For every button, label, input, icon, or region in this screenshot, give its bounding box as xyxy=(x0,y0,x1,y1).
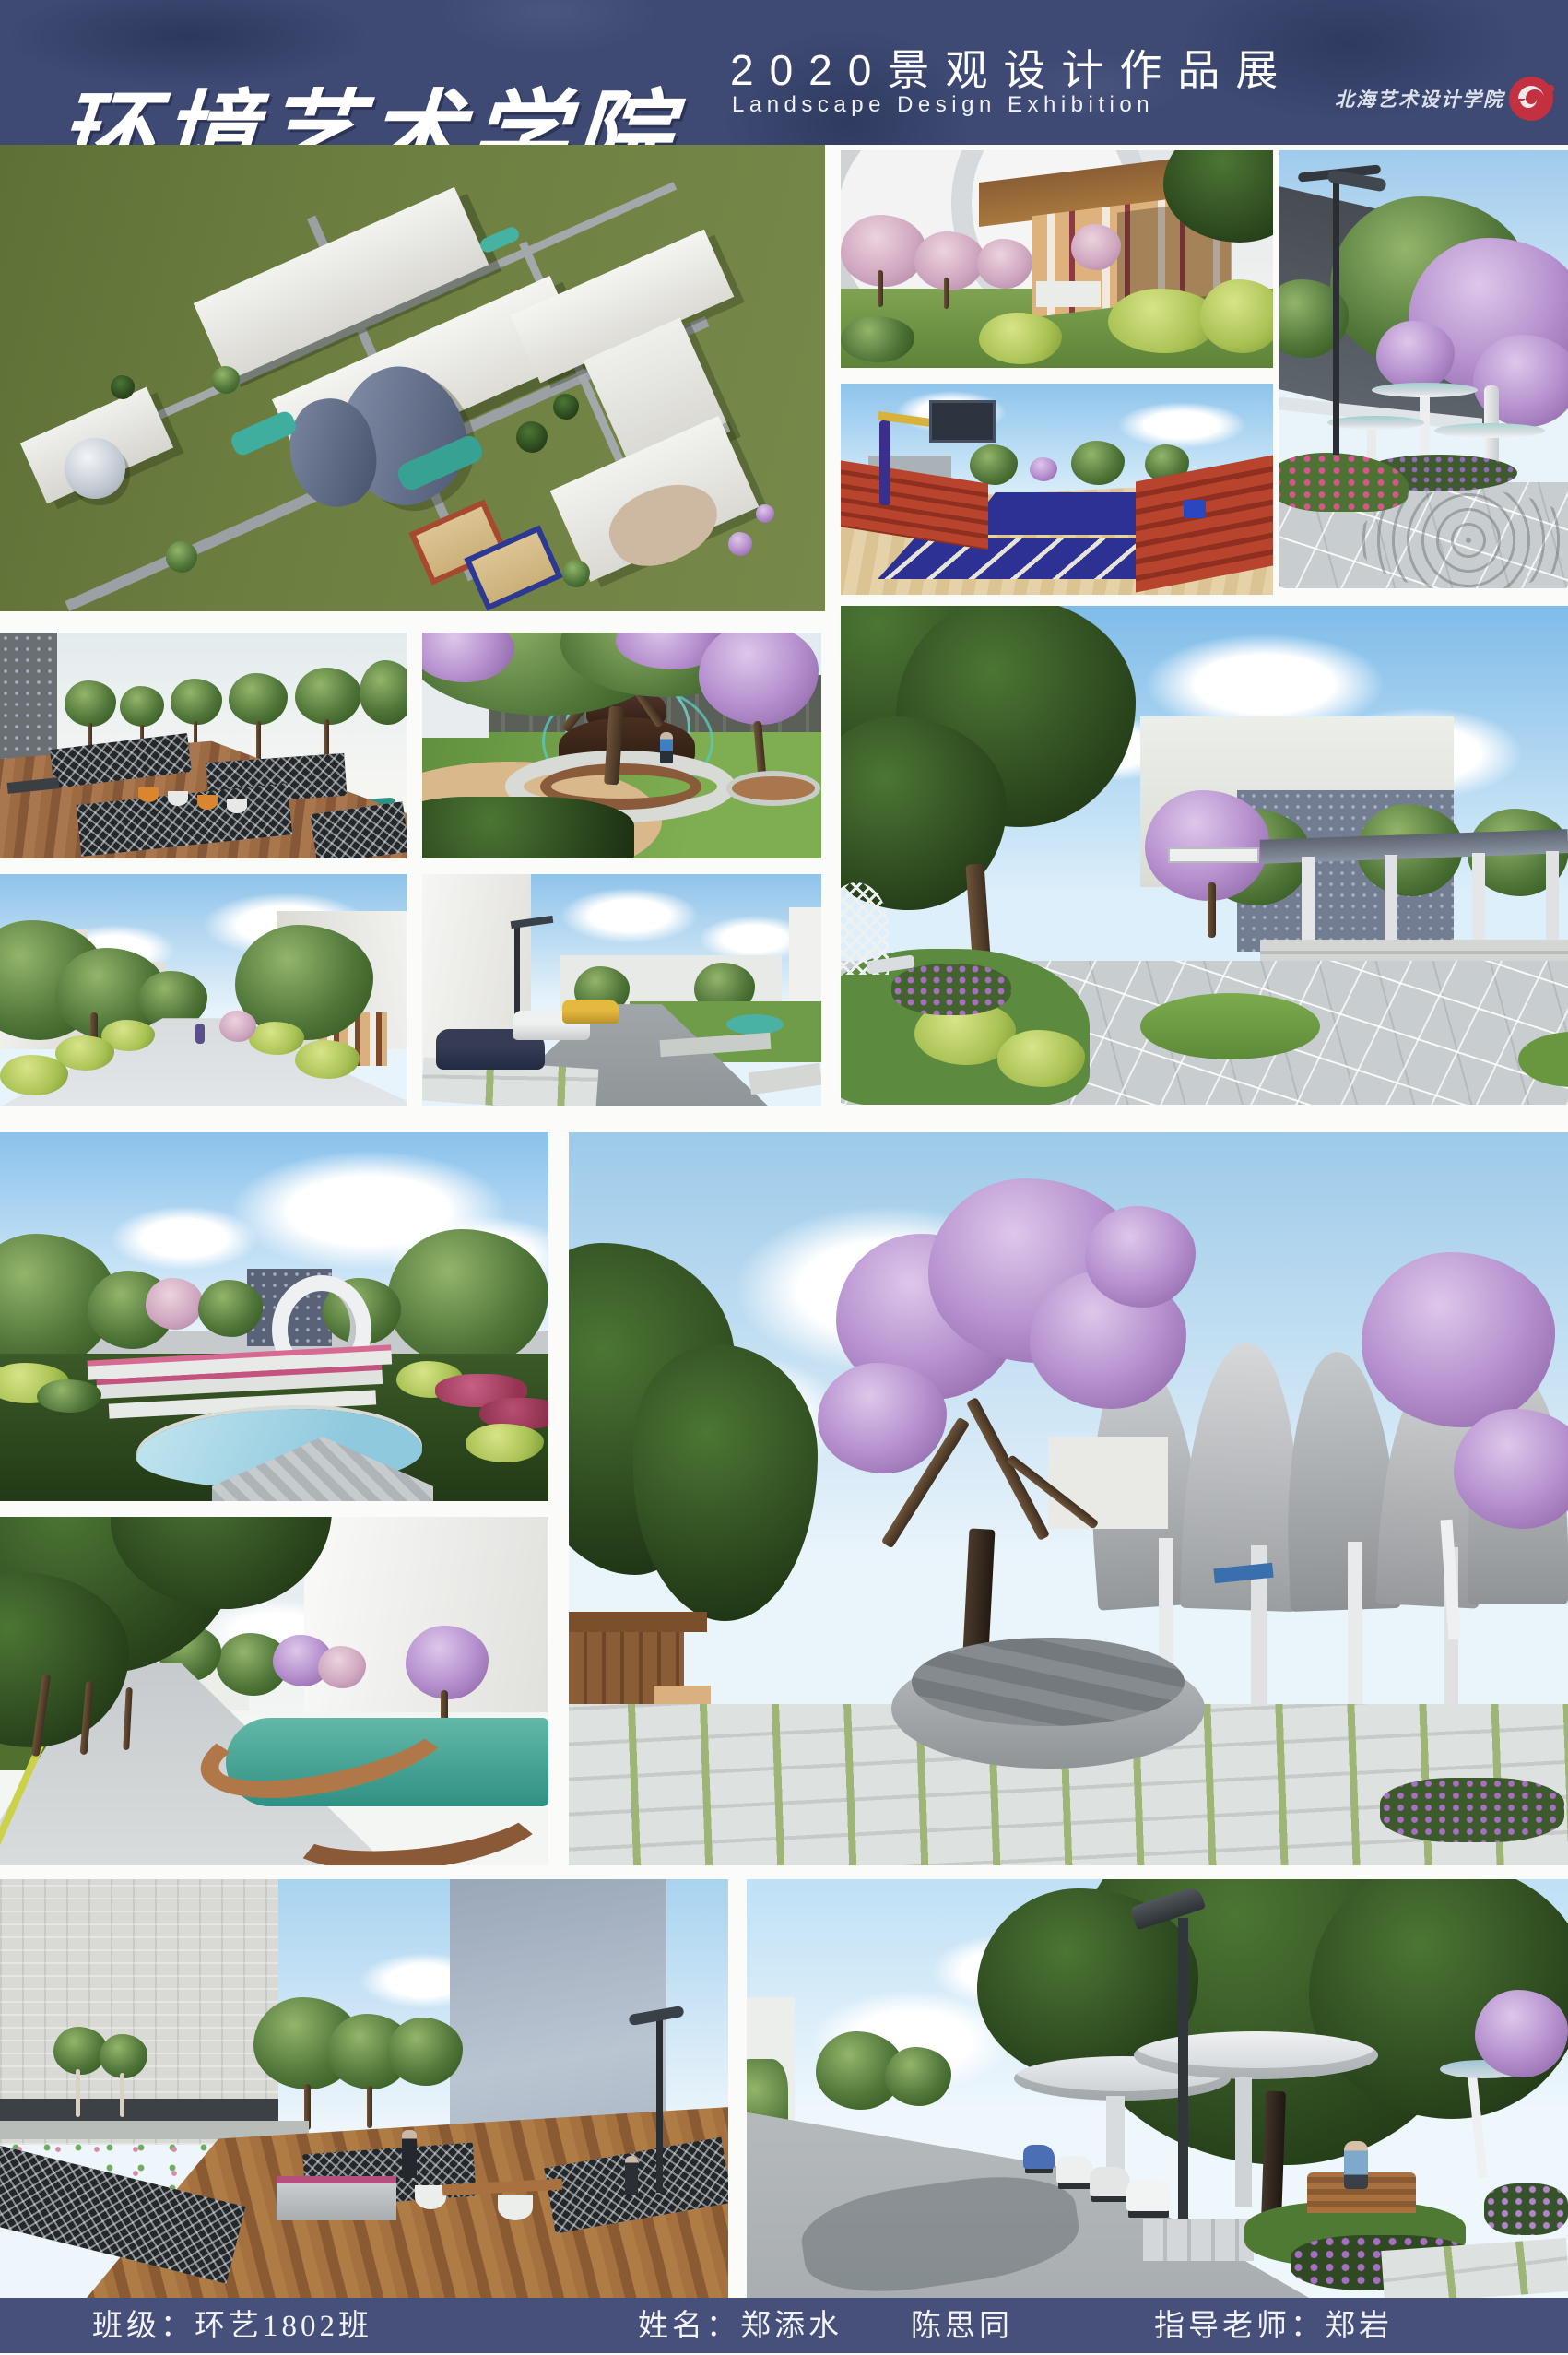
pond xyxy=(229,408,299,457)
planter-pot xyxy=(197,795,218,810)
render-aerial-masterplan xyxy=(0,145,825,611)
grass-ring xyxy=(726,771,820,806)
artificial-tree-disc xyxy=(1327,416,1424,430)
purple-flower-bed xyxy=(1484,2183,1568,2235)
tree xyxy=(360,660,407,725)
render-courtyard-road xyxy=(422,874,821,1106)
lamp-pole xyxy=(1178,1918,1188,2250)
planter-box xyxy=(1036,281,1101,307)
backboard xyxy=(929,400,996,443)
building xyxy=(1048,1437,1168,1529)
planter-pot xyxy=(168,791,188,806)
blossom-tree xyxy=(1071,224,1121,270)
artificial-tree-disc xyxy=(1434,423,1545,438)
bush xyxy=(0,1055,68,1095)
blossom-canopy xyxy=(818,1363,947,1473)
stone-bench xyxy=(749,1063,821,1095)
planter-box xyxy=(277,2183,396,2220)
person xyxy=(625,2156,638,2195)
purple-flowers xyxy=(891,964,1011,1015)
bush xyxy=(466,1424,544,1462)
bush xyxy=(37,1379,101,1413)
round-planter-top xyxy=(912,1638,1185,1726)
cloud xyxy=(1117,402,1246,448)
scooter xyxy=(1056,2156,1093,2183)
render-basketball-court xyxy=(841,384,1273,595)
scooter xyxy=(1090,2167,1130,2196)
render-round-canopy-plaza xyxy=(747,1879,1568,2298)
blossom-tree xyxy=(914,231,984,290)
bush xyxy=(841,316,914,362)
tree-trunk xyxy=(367,2086,372,2128)
tree xyxy=(111,375,135,399)
tree xyxy=(885,2047,951,2106)
dome xyxy=(65,438,125,499)
blossom-tree xyxy=(977,239,1032,289)
tree xyxy=(53,2027,107,2075)
bin xyxy=(1184,500,1206,518)
tree-trunk xyxy=(944,278,949,309)
tree xyxy=(1071,441,1125,485)
render-deck-terrace xyxy=(0,1879,728,2298)
blossom-tree xyxy=(318,1646,366,1688)
blossom-tree xyxy=(728,532,752,556)
blossom-tree xyxy=(841,215,925,287)
planter-pot xyxy=(227,799,247,813)
tree xyxy=(970,444,1018,485)
conifer-tree xyxy=(633,1344,818,1621)
planter-pot xyxy=(415,2185,446,2209)
tree xyxy=(553,394,579,420)
hoop-pole xyxy=(879,420,890,505)
tree-trunk xyxy=(120,2073,124,2117)
pergola-column xyxy=(1302,857,1315,941)
tree xyxy=(562,560,590,587)
tree xyxy=(100,2034,147,2078)
student-names: 姓名：郑添水 陈思同 xyxy=(638,2298,1013,2355)
render-boardwalk xyxy=(0,633,407,858)
tree xyxy=(387,1229,548,1367)
tree xyxy=(171,679,222,725)
blossom-bush xyxy=(219,1011,256,1042)
lamp-pole xyxy=(656,2018,663,2193)
school-logo-swirl-icon xyxy=(1506,72,1558,124)
stone-kerb xyxy=(1143,2219,1254,2261)
blossom-branch xyxy=(966,1397,1050,1541)
building-base xyxy=(0,2099,278,2123)
tree xyxy=(198,1280,263,1337)
render-canopy-tree-plaza xyxy=(1279,150,1568,588)
tree-trunk xyxy=(76,2069,80,2117)
pergola-column xyxy=(1385,855,1397,943)
poster-footer: 班级：环艺1802班 姓名：郑添水 陈思同 指导老师：郑岩 xyxy=(0,2298,1568,2353)
cloud xyxy=(560,888,699,943)
bush xyxy=(249,1022,304,1055)
blossom-tree xyxy=(1362,1252,1555,1427)
render-campus-street xyxy=(0,874,407,1106)
planter-pot xyxy=(138,787,159,802)
purple-flower-bed xyxy=(1380,1778,1564,1842)
class-label: 班级：环艺1802班 xyxy=(92,2298,372,2355)
render-ring-sculpture-park xyxy=(0,1132,548,1501)
lamp-pole xyxy=(1333,178,1339,455)
pond xyxy=(478,225,522,255)
hedge xyxy=(422,797,634,858)
bush xyxy=(979,313,1062,364)
scooter xyxy=(1126,2180,1171,2211)
exhibition-subtitle-en: Landscape Design Exhibition xyxy=(732,92,1154,118)
tree xyxy=(120,686,164,727)
lamp-pole xyxy=(514,922,520,1014)
render-petal-pavilion xyxy=(569,1132,1568,1865)
tree xyxy=(166,541,197,573)
artificial-tree-disc xyxy=(1372,383,1478,397)
person-sitting xyxy=(1344,2141,1368,2189)
blossom-canopy xyxy=(1085,1206,1196,1308)
tree xyxy=(295,668,361,725)
blossom-tree xyxy=(1475,1990,1568,2077)
cloud xyxy=(111,1206,258,1271)
disc-canopy xyxy=(1134,2031,1378,2079)
tree-trunk xyxy=(1208,882,1216,938)
cyclist xyxy=(195,1024,205,1044)
blossom-tree xyxy=(406,1626,489,1699)
blossom-tree xyxy=(1030,457,1057,481)
pergola-column xyxy=(1472,853,1485,943)
blossom-tree xyxy=(756,504,774,523)
bush xyxy=(997,1030,1085,1087)
exhibition-subtitle-cn: 2020景观设计作品展 xyxy=(730,37,1293,98)
tree xyxy=(516,421,548,453)
pond xyxy=(726,1014,784,1035)
tree xyxy=(212,366,240,394)
canopy-column xyxy=(1235,2077,1252,2207)
render-pool-promenade xyxy=(0,1517,548,1865)
planter-pot xyxy=(498,2195,533,2220)
advisor-label: 指导老师：郑岩 xyxy=(1154,2298,1393,2355)
sign-board xyxy=(1168,847,1259,863)
pergola-column xyxy=(1546,851,1559,943)
school-name-calligraphy: 北海艺术设计学院 xyxy=(1335,85,1504,112)
render-fountain xyxy=(422,633,821,858)
render-pergola-corridor xyxy=(841,150,1273,368)
pavilion-column xyxy=(1348,1542,1362,1708)
tree xyxy=(387,2018,463,2086)
tree xyxy=(65,680,116,727)
wood-beam xyxy=(569,1612,707,1632)
bush xyxy=(1200,279,1273,353)
render-pergola-plaza xyxy=(841,606,1568,1105)
bush xyxy=(295,1040,360,1079)
scooter xyxy=(1023,2145,1055,2169)
car-yellow xyxy=(562,1000,619,1024)
blossom-tree xyxy=(146,1278,203,1330)
blossom-tree xyxy=(1376,321,1455,390)
tree-trunk xyxy=(878,270,883,307)
tree xyxy=(229,673,288,725)
poster-header: 环境艺术学院 2020景观设计作品展 Landscape Design Exhi… xyxy=(0,0,1568,145)
person xyxy=(402,2130,417,2178)
person xyxy=(660,732,673,763)
lawn-circle xyxy=(1140,993,1320,1059)
